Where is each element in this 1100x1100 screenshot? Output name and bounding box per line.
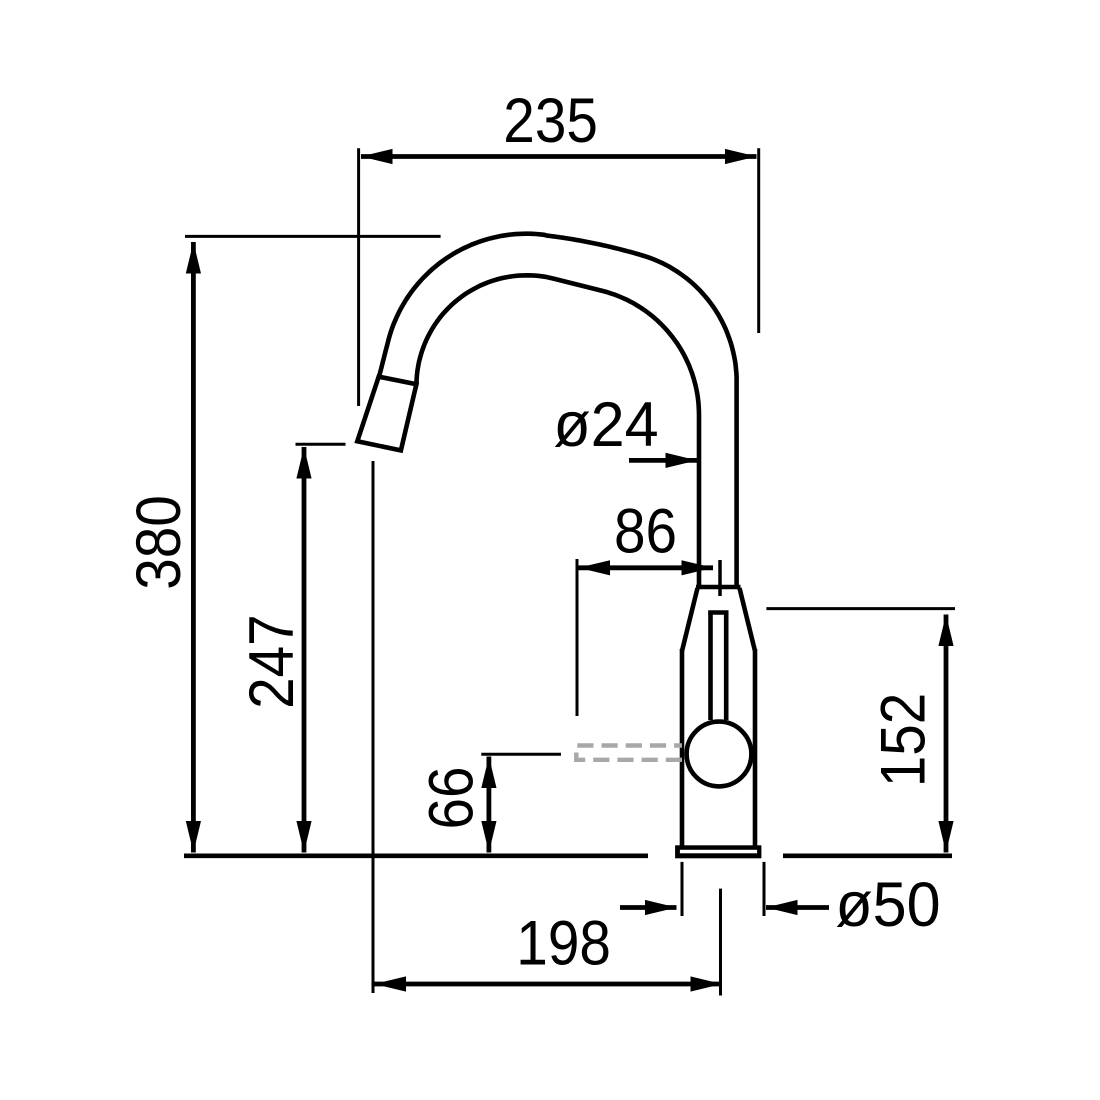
svg-text:ø50: ø50 [835,870,940,940]
svg-text:152: 152 [868,693,938,788]
svg-text:247: 247 [236,614,306,709]
svg-text:198: 198 [516,908,611,978]
svg-text:235: 235 [503,85,598,155]
svg-text:380: 380 [123,495,193,590]
svg-text:ø24: ø24 [553,390,658,460]
svg-text:86: 86 [614,496,677,566]
svg-text:66: 66 [416,766,486,829]
